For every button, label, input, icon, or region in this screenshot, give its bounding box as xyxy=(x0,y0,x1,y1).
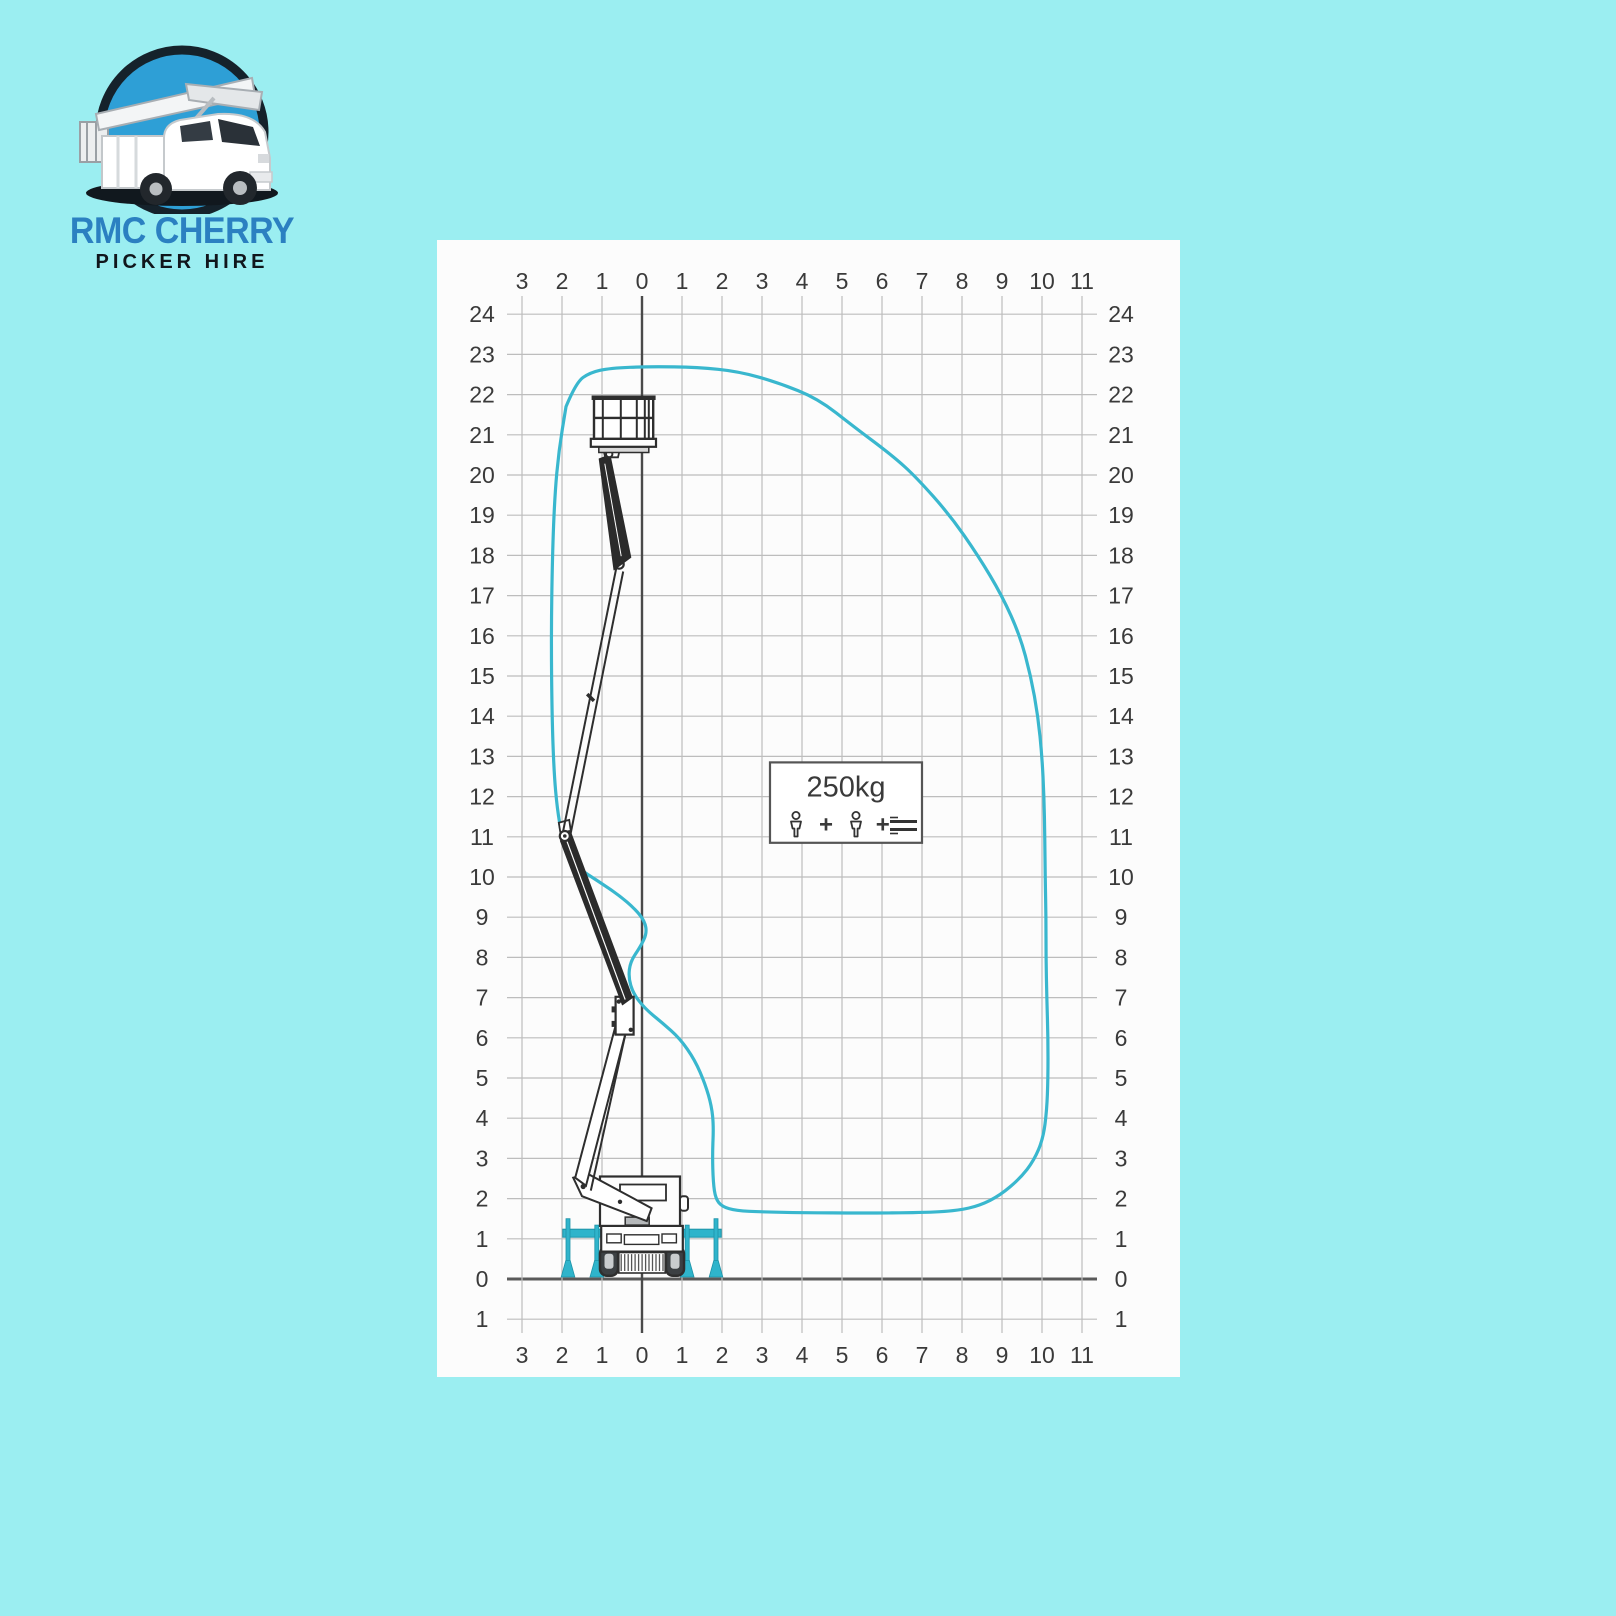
y-tick-left: 1 xyxy=(476,1306,489,1332)
y-tick-left: 19 xyxy=(469,502,495,528)
y-tick-left: 10 xyxy=(469,864,495,890)
outrigger-post xyxy=(714,1219,718,1263)
outrigger-post xyxy=(685,1225,689,1263)
y-tick-right: 5 xyxy=(1115,1065,1128,1091)
y-tick-right: 24 xyxy=(1108,301,1134,327)
y-tick-right: 3 xyxy=(1115,1145,1128,1171)
y-tick-right: 9 xyxy=(1115,904,1128,930)
y-tick-left: 23 xyxy=(469,341,495,367)
x-tick-bottom: 6 xyxy=(876,1342,889,1368)
y-tick-right: 12 xyxy=(1108,784,1134,810)
brand-name: RMC CHERRY xyxy=(70,213,294,250)
y-tick-right: 7 xyxy=(1115,985,1128,1011)
x-tick-bottom: 2 xyxy=(716,1342,729,1368)
y-tick-left: 18 xyxy=(469,542,495,568)
reach-diagram-panel: 3322110011223344556677889910101111242423… xyxy=(437,240,1180,1377)
x-tick-top: 1 xyxy=(676,268,689,294)
y-tick-left: 8 xyxy=(476,944,489,970)
x-tick-bottom: 1 xyxy=(676,1342,689,1368)
y-tick-left: 16 xyxy=(469,623,495,649)
x-tick-top: 9 xyxy=(996,268,1009,294)
x-tick-bottom: 9 xyxy=(996,1342,1009,1368)
x-tick-top: 2 xyxy=(716,268,729,294)
x-tick-bottom: 3 xyxy=(516,1342,529,1368)
x-tick-top: 3 xyxy=(516,268,529,294)
plus-sign: + xyxy=(876,812,890,839)
capacity-label: 250kg xyxy=(806,772,885,804)
y-tick-left: 12 xyxy=(469,784,495,810)
y-tick-left: 13 xyxy=(469,743,495,769)
outrigger-post xyxy=(566,1219,570,1263)
x-tick-top: 10 xyxy=(1029,268,1055,294)
outrigger-foot xyxy=(561,1261,575,1278)
y-tick-right: 21 xyxy=(1108,422,1134,448)
y-tick-left: 11 xyxy=(470,824,494,850)
y-tick-left: 9 xyxy=(476,904,489,930)
x-tick-bottom: 0 xyxy=(636,1342,649,1368)
y-tick-right: 18 xyxy=(1108,542,1134,568)
y-tick-right: 19 xyxy=(1108,502,1134,528)
y-tick-right: 11 xyxy=(1109,824,1133,850)
y-tick-left: 21 xyxy=(469,422,495,448)
load-capacity-sign: 250kg++ xyxy=(770,762,922,842)
y-tick-right: 4 xyxy=(1115,1105,1128,1131)
y-tick-left: 20 xyxy=(469,462,495,488)
x-tick-bottom: 10 xyxy=(1029,1342,1055,1368)
y-tick-left: 15 xyxy=(469,663,495,689)
outrigger-post xyxy=(595,1225,599,1263)
y-tick-right: 8 xyxy=(1115,944,1128,970)
x-tick-bottom: 8 xyxy=(956,1342,969,1368)
y-tick-left: 22 xyxy=(469,382,495,408)
y-tick-right: 2 xyxy=(1115,1186,1128,1212)
x-tick-top: 5 xyxy=(836,268,849,294)
y-tick-right: 23 xyxy=(1108,341,1134,367)
reach-diagram: 3322110011223344556677889910101111242423… xyxy=(437,240,1180,1377)
x-tick-bottom: 1 xyxy=(596,1342,609,1368)
y-tick-right: 22 xyxy=(1108,382,1134,408)
x-tick-bottom: 2 xyxy=(556,1342,569,1368)
y-tick-right: 15 xyxy=(1108,663,1134,689)
x-tick-top: 3 xyxy=(756,268,769,294)
y-tick-left: 0 xyxy=(476,1266,489,1292)
x-tick-bottom: 3 xyxy=(756,1342,769,1368)
y-tick-right: 6 xyxy=(1115,1025,1128,1051)
brand-tagline: PICKER HIRE xyxy=(96,251,269,274)
y-tick-right: 1 xyxy=(1115,1306,1128,1332)
x-tick-top: 2 xyxy=(556,268,569,294)
x-tick-top: 6 xyxy=(876,268,889,294)
y-tick-left: 4 xyxy=(476,1105,489,1131)
y-tick-right: 17 xyxy=(1108,583,1134,609)
y-tick-right: 0 xyxy=(1115,1266,1128,1292)
y-tick-left: 6 xyxy=(476,1025,489,1051)
y-tick-left: 14 xyxy=(469,703,495,729)
machine-drawing xyxy=(559,398,723,1277)
brand-logo: RMC CHERRY PICKER HIRE xyxy=(66,36,298,274)
x-tick-bottom: 4 xyxy=(796,1342,809,1368)
y-tick-right: 16 xyxy=(1108,623,1134,649)
y-tick-right: 10 xyxy=(1108,864,1134,890)
truck-logo-graphic xyxy=(66,36,298,214)
y-tick-left: 2 xyxy=(476,1186,489,1212)
y-tick-right: 14 xyxy=(1108,703,1134,729)
page-background: RMC CHERRY PICKER HIRE 33221100112233445… xyxy=(0,0,1616,1616)
x-tick-top: 0 xyxy=(636,268,649,294)
x-tick-bottom: 11 xyxy=(1070,1342,1094,1368)
y-tick-left: 7 xyxy=(476,985,489,1011)
y-tick-left: 3 xyxy=(476,1145,489,1171)
riser-boom xyxy=(560,832,632,1005)
y-tick-left: 24 xyxy=(469,301,495,327)
y-tick-left: 1 xyxy=(476,1226,489,1252)
y-tick-right: 1 xyxy=(1115,1226,1128,1252)
y-tick-left: 5 xyxy=(476,1065,489,1091)
x-tick-top: 4 xyxy=(796,268,809,294)
x-tick-top: 8 xyxy=(956,268,969,294)
y-tick-left: 17 xyxy=(469,583,495,609)
x-tick-top: 7 xyxy=(916,268,929,294)
x-tick-top: 11 xyxy=(1070,268,1094,294)
x-tick-bottom: 5 xyxy=(836,1342,849,1368)
upper-arm xyxy=(599,455,631,570)
x-tick-bottom: 7 xyxy=(916,1342,929,1368)
y-tick-right: 13 xyxy=(1108,743,1134,769)
x-tick-top: 1 xyxy=(596,268,609,294)
outrigger-foot xyxy=(709,1261,723,1278)
y-tick-right: 20 xyxy=(1108,462,1134,488)
plus-sign: + xyxy=(819,812,833,839)
